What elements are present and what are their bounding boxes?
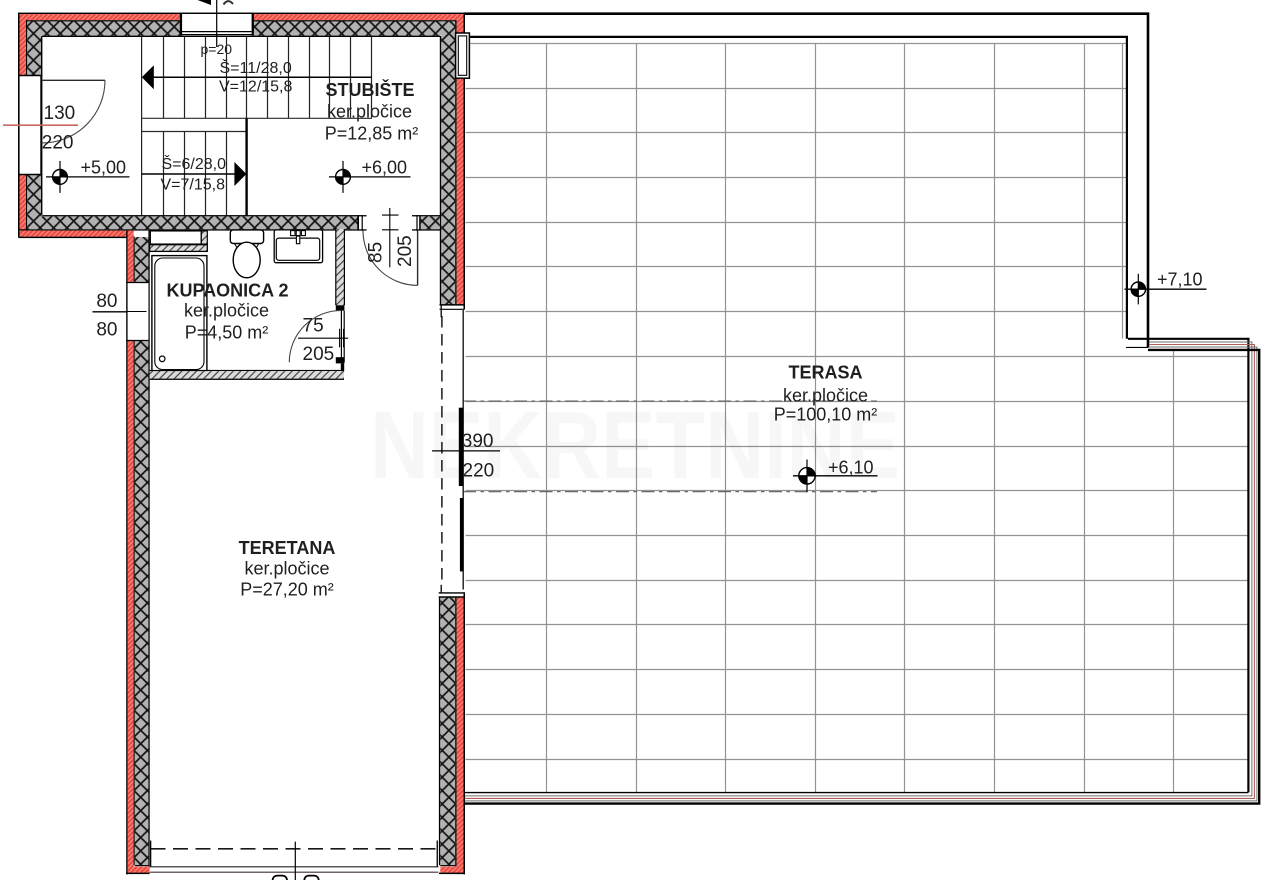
svg-text:ker.pločice: ker.pločice xyxy=(184,301,269,321)
svg-text:205: 205 xyxy=(395,235,416,267)
svg-text:220: 220 xyxy=(463,460,495,481)
svg-text:P=12,85 m²: P=12,85 m² xyxy=(325,124,419,144)
svg-text:130: 130 xyxy=(44,103,76,124)
svg-text:Š=11/28,0: Š=11/28,0 xyxy=(220,58,292,77)
svg-text:V=7/15,8: V=7/15,8 xyxy=(161,176,226,193)
svg-text:P=4,50 m²: P=4,50 m² xyxy=(185,323,269,343)
svg-text:80: 80 xyxy=(96,320,117,341)
svg-text:ker.pločice: ker.pločice xyxy=(327,102,412,122)
svg-text:P=27,20 m²: P=27,20 m² xyxy=(240,580,334,600)
svg-text:TERETANA: TERETANA xyxy=(239,538,336,558)
svg-text:STUBIŠTE: STUBIŠTE xyxy=(325,79,414,100)
svg-text:220: 220 xyxy=(42,132,74,153)
svg-text:ker.pločice: ker.pločice xyxy=(783,386,868,406)
svg-text:75: 75 xyxy=(303,316,324,337)
svg-text:+6,00: +6,00 xyxy=(362,157,408,177)
svg-text:+6,10: +6,10 xyxy=(828,458,874,478)
svg-text:P=100,10 m²: P=100,10 m² xyxy=(774,405,878,425)
svg-text:+7,10: +7,10 xyxy=(1157,270,1203,290)
svg-text:TERASA: TERASA xyxy=(788,363,862,383)
svg-text:+5,00: +5,00 xyxy=(81,157,127,177)
svg-text:85: 85 xyxy=(366,242,387,263)
svg-text:205: 205 xyxy=(303,344,335,365)
svg-text:Š=6/28,0: Š=6/28,0 xyxy=(162,154,227,173)
svg-text:390: 390 xyxy=(462,431,494,452)
svg-text:KUPAONICA 2: KUPAONICA 2 xyxy=(166,281,288,301)
svg-text:ker.pločice: ker.pločice xyxy=(244,559,329,579)
svg-text:V=12/15,8: V=12/15,8 xyxy=(219,78,293,95)
svg-text:80: 80 xyxy=(96,291,117,312)
